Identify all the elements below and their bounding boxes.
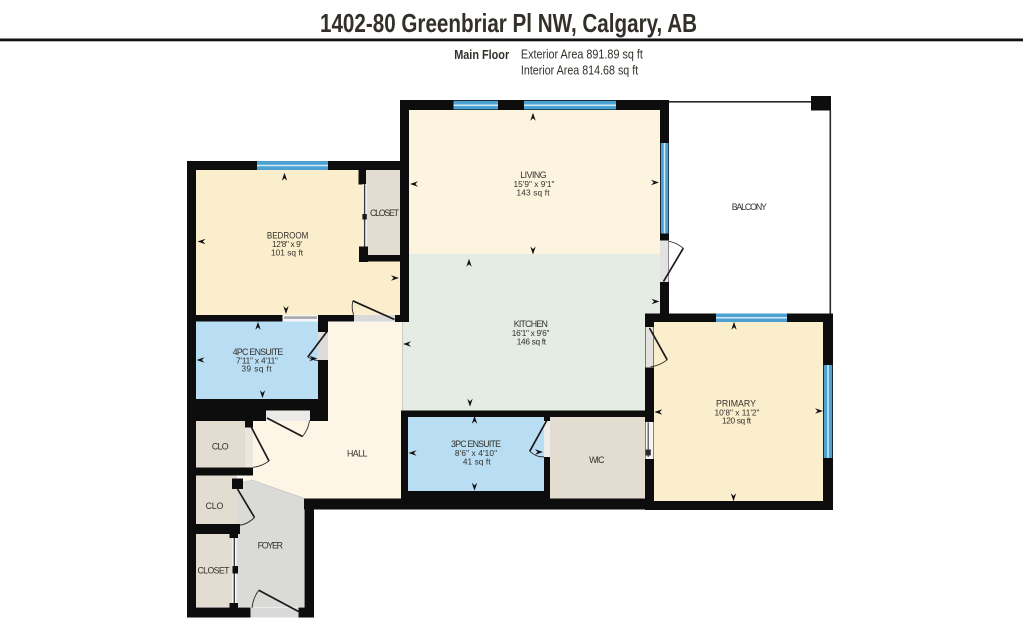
svg-text:41 sq ft: 41 sq ft: [463, 457, 491, 467]
svg-text:120 sq ft: 120 sq ft: [722, 416, 752, 426]
svg-text:FOYER: FOYER: [258, 540, 283, 550]
svg-text:CLO: CLO: [206, 501, 224, 511]
svg-text:CLOSET: CLOSET: [370, 208, 400, 218]
svg-text:Main Floor: Main Floor: [454, 47, 509, 62]
svg-text:Exterior Area 891.89 sq ft: Exterior Area 891.89 sq ft: [521, 47, 643, 62]
svg-text:1402-80 Greenbriar Pl NW, Calg: 1402-80 Greenbriar Pl NW, Calgary, AB: [320, 8, 697, 38]
svg-text:39 sq ft: 39 sq ft: [242, 364, 273, 374]
svg-text:101 sq ft: 101 sq ft: [271, 248, 304, 258]
svg-text:Interior Area 814.68 sq ft: Interior Area 814.68 sq ft: [521, 63, 639, 78]
svg-text:CLO: CLO: [212, 442, 229, 452]
svg-text:143 sq ft: 143 sq ft: [517, 188, 551, 198]
svg-text:146 sq ft: 146 sq ft: [517, 336, 547, 346]
svg-text:WIC: WIC: [589, 455, 605, 465]
svg-text:BALCONY: BALCONY: [732, 202, 767, 212]
svg-text:HALL: HALL: [347, 448, 368, 458]
svg-text:CLOSET: CLOSET: [197, 566, 230, 576]
